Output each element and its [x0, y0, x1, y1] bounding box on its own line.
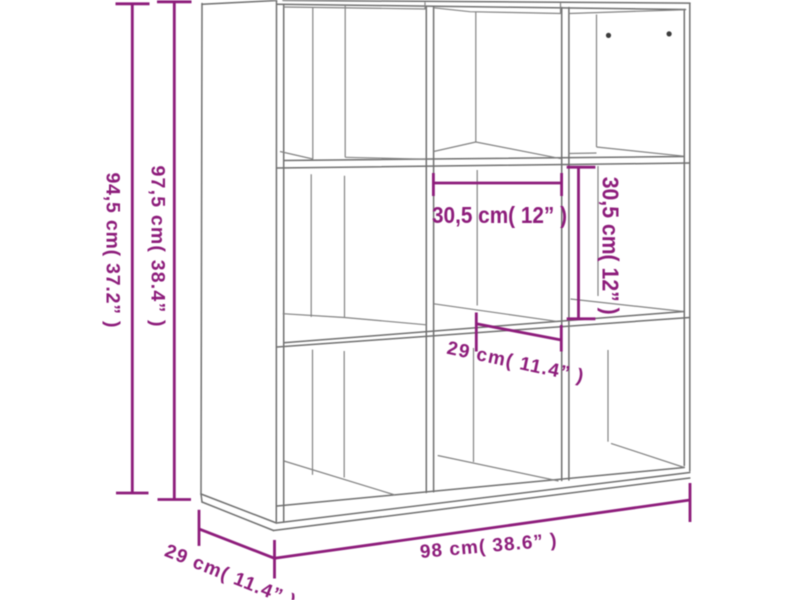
svg-text:30,5 cm( 12” ): 30,5 cm( 12” ) — [598, 177, 624, 315]
svg-text:94,5 cm( 37.2” ): 94,5 cm( 37.2” ) — [102, 173, 124, 328]
svg-text:97,5 cm( 38.4” ): 97,5 cm( 38.4” ) — [147, 166, 169, 327]
svg-text:30,5 cm( 12” ): 30,5 cm( 12” ) — [432, 202, 567, 228]
